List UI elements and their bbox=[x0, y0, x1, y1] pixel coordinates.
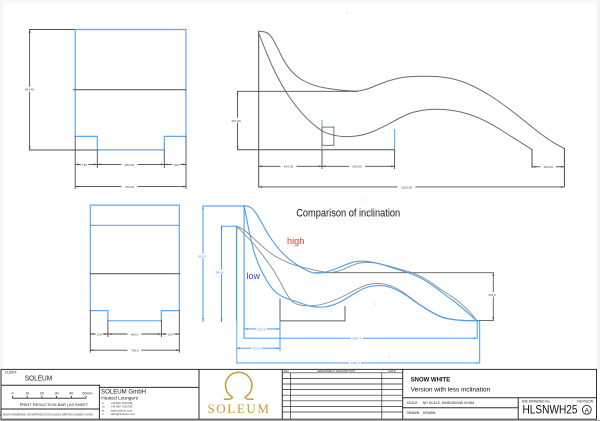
svg-text:10: 10 bbox=[25, 392, 29, 396]
svg-text:459.8: 459.8 bbox=[488, 293, 496, 297]
svg-text:40: 40 bbox=[69, 392, 73, 396]
svg-text:150: 150 bbox=[82, 163, 87, 167]
svg-text:824.40: 824.40 bbox=[25, 88, 35, 92]
svg-text:460.00: 460.00 bbox=[125, 163, 135, 167]
svg-text:CLIENT:: CLIENT: bbox=[5, 370, 17, 374]
svg-text:SCALE: SCALE bbox=[407, 401, 419, 405]
svg-text:AMENDMENT DESCRIPTION: AMENDMENT DESCRIPTION bbox=[317, 369, 355, 373]
svg-text:Comparison of inclination: Comparison of inclination bbox=[296, 208, 400, 220]
svg-text:e:: e: bbox=[102, 412, 105, 416]
svg-text:SNOW WHITE: SNOW WHITE bbox=[411, 377, 451, 384]
svg-text:2067.7: 2067.7 bbox=[352, 337, 362, 341]
svg-text:760.00: 760.00 bbox=[125, 185, 135, 189]
svg-text:373.0: 373.0 bbox=[253, 347, 261, 351]
svg-text:150: 150 bbox=[168, 332, 173, 336]
svg-text:2100.00: 2100.00 bbox=[401, 185, 412, 189]
svg-text:sales@soleum.com: sales@soleum.com bbox=[111, 412, 136, 416]
svg-text:SOLEUM GmbH: SOLEUM GmbH bbox=[101, 389, 146, 396]
svg-text:HLSNWH25: HLSNWH25 bbox=[523, 404, 578, 417]
svg-text:NO SCALE, DIMENSIONS IN MM: NO SCALE, DIMENSIONS IN MM bbox=[423, 401, 475, 405]
svg-text:233.4: 233.4 bbox=[258, 327, 266, 331]
svg-text:20: 20 bbox=[40, 392, 44, 396]
svg-text:554.8: 554.8 bbox=[216, 270, 224, 274]
svg-text:760.0: 760.0 bbox=[131, 349, 139, 353]
svg-text:0: 0 bbox=[12, 392, 14, 396]
svg-text:DRAWN: DRAWN bbox=[423, 411, 436, 415]
svg-text:SOLEUM: SOLEUM bbox=[25, 373, 53, 382]
svg-text:Version with less inclination: Version with less inclination bbox=[411, 386, 491, 393]
svg-text:220.00: 220.00 bbox=[543, 165, 553, 169]
svg-text:50mm: 50mm bbox=[83, 392, 93, 396]
svg-text:2350.0: 2350.0 bbox=[350, 361, 360, 365]
svg-text:500.00: 500.00 bbox=[352, 165, 362, 169]
svg-text:150: 150 bbox=[173, 163, 178, 167]
svg-text:460.0: 460.0 bbox=[131, 332, 139, 336]
svg-text:PRINT REDUCTION BAR | A3 SHE: PRINT REDUCTION BAR | A3 SHEET bbox=[20, 402, 89, 407]
svg-text:DATE: DATE bbox=[388, 369, 395, 373]
svg-text:REVISION: REVISION bbox=[577, 399, 593, 403]
svg-text:150: 150 bbox=[97, 332, 102, 336]
svg-text:high: high bbox=[287, 236, 304, 246]
svg-text:407.00: 407.00 bbox=[231, 119, 241, 123]
svg-text:DRAWN: DRAWN bbox=[407, 411, 420, 415]
svg-text:JOB-DRAWING No.: JOB-DRAWING No. bbox=[521, 399, 550, 403]
svg-text:low: low bbox=[247, 271, 261, 281]
svg-text:SOLEUM: SOLEUM bbox=[207, 401, 270, 416]
svg-text:434.09: 434.09 bbox=[284, 165, 294, 169]
svg-text:ALL RIGHTS RESERVED. NO REPROD: ALL RIGHTS RESERVED. NO REPRODUCTION UNL… bbox=[0, 414, 93, 417]
svg-text:Rev.: Rev. bbox=[284, 369, 290, 373]
svg-text:30: 30 bbox=[55, 392, 59, 396]
svg-text:A: A bbox=[585, 407, 590, 414]
svg-text:830.5: 830.5 bbox=[198, 254, 206, 258]
